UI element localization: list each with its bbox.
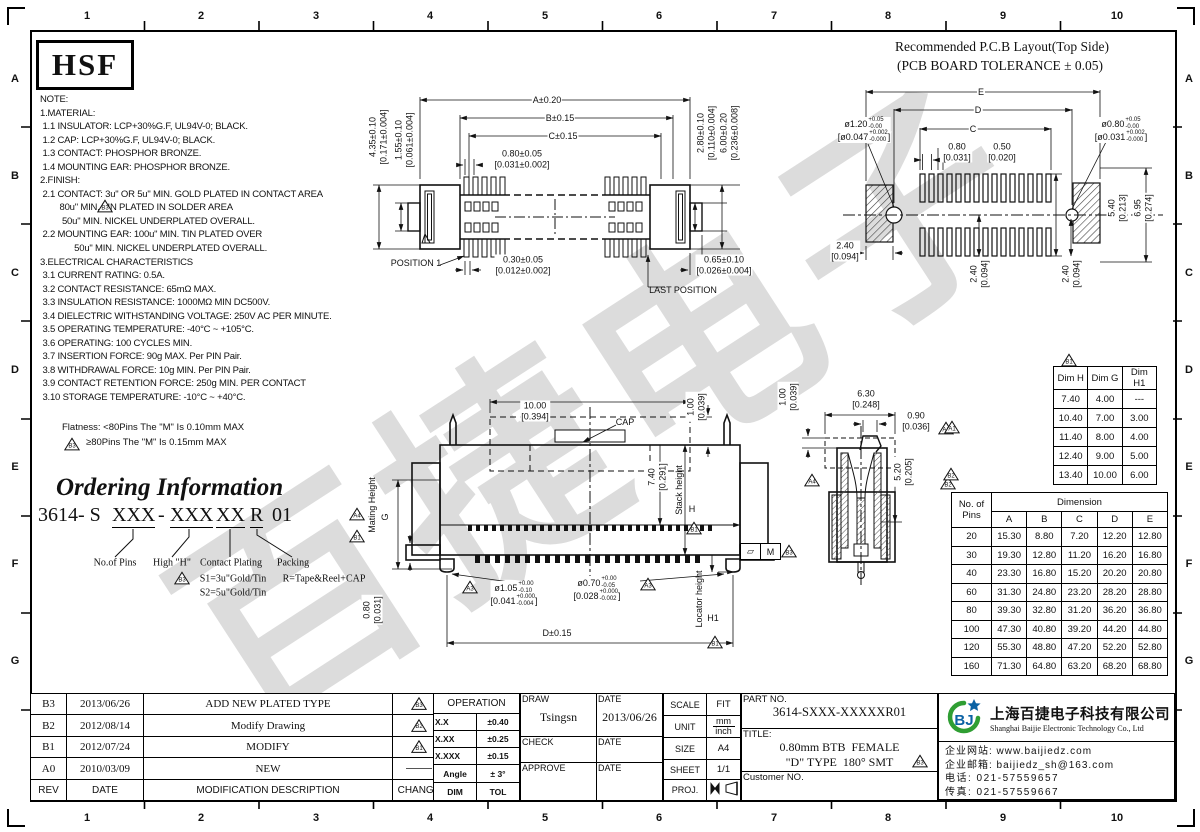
pcb-hole-right-callout: ø0.80+0.05-0.00 [ø0.031+0.002-0.000] [1095, 117, 1148, 143]
side-dim-100: 1.00 [0.039] [778, 382, 799, 412]
notes-block: NOTE: 1.MATERIAL: 1.1 INSULATOR: LCP+30%… [40, 93, 376, 405]
row-label: C [1185, 267, 1193, 279]
cell: 3.00 [1122, 409, 1156, 428]
cell: 4.00 [1122, 428, 1156, 447]
cell: 5.00 [1122, 447, 1156, 466]
cell: No. of Pins [952, 493, 992, 528]
dim-c: C±0.15 [548, 131, 579, 142]
rev-flag-a3: A3 [640, 578, 656, 591]
cell: ± 3° [477, 765, 520, 783]
stack-height-label: Stack height [674, 464, 685, 516]
cell: Dimension [992, 493, 1168, 512]
ordering-code-height: XXX [170, 504, 213, 528]
company-name-cn: 上海百捷电子科技有限公司 [990, 703, 1170, 724]
cell: 7.20 [1062, 528, 1097, 547]
row-label: A [1185, 73, 1193, 85]
row-label: F [12, 558, 19, 570]
rev-flag-a3: A3 [462, 581, 478, 594]
cell: E [1132, 512, 1167, 528]
locator-height-h1: H1 [706, 613, 720, 624]
company-header: BJ 上海百捷电子科技有限公司 Shanghai Baijie Electron… [939, 694, 1174, 742]
rev-flag-b2: B2 [943, 468, 959, 481]
cell: 11.20 [1062, 546, 1097, 565]
cell: 10.40 [1054, 409, 1088, 428]
part-no-label: PART NO. [743, 694, 936, 705]
pins-dimension-table: No. of Pins Dimension A B C D E 2015.308… [951, 492, 1168, 676]
tolerance-table: OPERATION X.X±0.40 X.XX±0.25 X.XXX±0.15 … [433, 693, 520, 801]
row-label: C [11, 267, 19, 279]
draw-date-cell: DATE 2013/06/26 [597, 694, 663, 737]
cell: 31.30 [992, 583, 1027, 602]
col-label: 2 [198, 812, 204, 824]
row-label: A [11, 73, 19, 85]
customer-no-cell: Customer NO. [742, 772, 938, 801]
pcb-dim-695: 6.95 [0.274] [1133, 193, 1154, 223]
mating-height-label: Mating Height [367, 476, 378, 534]
date-label: DATE [598, 763, 661, 773]
company-fax: 传真: 021-57559667 [945, 786, 1168, 800]
cell: 40 [952, 565, 992, 584]
baijie-logo-icon: BJ [943, 698, 987, 738]
tolerance-header: OPERATION [434, 694, 520, 714]
side-dim-090: 0.90 [0.036] [901, 411, 931, 432]
cell: DIM [434, 783, 477, 801]
unit-label: UNIT [664, 716, 707, 738]
cell: 24.80 [1027, 583, 1062, 602]
col-label: 10 [1111, 10, 1123, 22]
cell: 23.20 [1062, 583, 1097, 602]
cell: 20.20 [1097, 565, 1132, 584]
rev-flag-b3: B3 [64, 438, 80, 451]
cell: 15.20 [1062, 565, 1097, 584]
col-label: 3 [313, 10, 319, 22]
cell: 47.20 [1062, 639, 1097, 658]
col-label: 8 [885, 812, 891, 824]
cell: 28.20 [1097, 583, 1132, 602]
rev-flag-b1: B1 [1061, 354, 1077, 367]
cell: B [1027, 512, 1062, 528]
rev-date: 2013/06/26 [67, 694, 144, 715]
dim-a: A±0.20 [532, 95, 562, 106]
cell: Dim H1 [1122, 367, 1156, 390]
mating-height-g: G [380, 512, 391, 521]
col-label: 4 [427, 812, 433, 824]
flatness-note-1: Flatness: <80Pins The "M" Is 0.10mm MAX [62, 422, 244, 433]
unit-value: mm inch [707, 716, 741, 738]
row-label: F [1186, 558, 1193, 570]
parallelism-icon: ▱ [741, 544, 761, 559]
ordering-code-prefix: 3614- S [38, 504, 101, 527]
rev-header-desc: MODIFICATION DESCRIPTION [144, 780, 393, 801]
sheet-value: 1/1 [707, 760, 741, 780]
col-label: 2 [198, 10, 204, 22]
row-label: G [1185, 655, 1194, 667]
dim-cap-width: 10.00 [0.394] [520, 401, 550, 422]
cell: 47.30 [992, 620, 1027, 639]
cell: X.X [434, 714, 477, 731]
company-phone: 电话: 021-57559657 [945, 772, 1168, 786]
approval-block: DRAW Tsingsn DATE 2013/06/26 CHECK DATE … [520, 693, 663, 801]
cell: 44.80 [1132, 620, 1167, 639]
trim-mark [1177, 809, 1195, 827]
trim-mark [7, 809, 25, 827]
rev-flag-b1: B1 [349, 530, 365, 543]
col-label: 9 [1000, 10, 1006, 22]
cell: 13.40 [1054, 466, 1088, 485]
draw-date: 2013/06/26 [598, 710, 661, 725]
dim-155: 1.55±0.10 [0.061±0.004] [394, 112, 415, 169]
cap-label: CAP [615, 417, 636, 428]
revision-table: B3 2013/06/26 ADD NEW PLATED TYPE B3 B2 … [30, 693, 446, 801]
check-cell: CHECK [521, 737, 597, 763]
row-label: G [11, 655, 20, 667]
cell: 20 [952, 528, 992, 547]
pcb-dim-240-left: 2.40 [0.094] [830, 241, 860, 262]
rev-flag-b1: B1 [686, 522, 702, 535]
date-label: DATE [598, 737, 661, 747]
rev-desc: Modify Drawing [144, 715, 393, 737]
cell: 12.80 [1027, 546, 1062, 565]
ordering-code-pins: XXX [112, 504, 155, 528]
scale-label: SCALE [664, 694, 707, 716]
hsf-logo: HSF [36, 40, 134, 90]
cell: 39.30 [992, 602, 1027, 621]
ordering-packing-r: R=Tape&Reel+CAP [283, 574, 366, 585]
cell: TOL [477, 783, 520, 801]
svg-text:BJ: BJ [954, 712, 973, 729]
dim-cap-height: 1.00 [0.039] [686, 392, 707, 422]
col-label: 9 [1000, 812, 1006, 824]
pcb-dim-pitch: 0.80 [0.031] [942, 142, 972, 163]
cell: 60 [952, 583, 992, 602]
cell: 36.20 [1097, 602, 1132, 621]
sheet-label: SHEET [664, 760, 707, 780]
title-line-2: "D" TYPE 180° SMT [743, 755, 936, 770]
cell: 4.00 [1088, 390, 1122, 409]
row-label: E [1185, 461, 1192, 473]
cell: 16.20 [1097, 546, 1132, 565]
col-label: 7 [771, 812, 777, 824]
cell: 31.20 [1062, 602, 1097, 621]
col-label: 8 [885, 10, 891, 22]
part-block: PART NO. 3614-SXXX-XXXXXR01 TITLE: 0.80m… [741, 693, 938, 801]
col-label: 7 [771, 10, 777, 22]
cell: 120 [952, 639, 992, 658]
ordering-code-dash: - [158, 504, 165, 527]
rev-flag-a4: A4 [349, 508, 365, 521]
row-label: D [11, 364, 19, 376]
last-position-label: LAST POSITION [648, 285, 718, 296]
cell: 68.80 [1132, 657, 1167, 676]
pcb-dim-240-mid: 2.40 [0.094] [969, 259, 990, 289]
cell: 52.80 [1132, 639, 1167, 658]
col-label: 5 [542, 812, 548, 824]
rev-date: 2012/08/14 [67, 715, 144, 737]
dim-080: 0.80 [0.031] [362, 595, 383, 625]
cell: Dim H [1054, 367, 1088, 390]
rev-flag-b3: B3 [97, 200, 113, 213]
dim-d: D±0.15 [542, 628, 573, 639]
cell: --- [1122, 390, 1156, 409]
dim-065: 0.65±0.10 [0.026±0.004] [696, 255, 753, 276]
cell: 7.40 [1054, 390, 1088, 409]
drawing-sheet: 百捷电子 1 2 3 4 5 6 7 8 9 10 1 2 3 4 5 6 7 … [0, 0, 1200, 832]
rev-id: B1 [31, 737, 67, 758]
side-dim-520: 5.20 [0.205] [893, 457, 914, 487]
cell: 7.00 [1088, 409, 1122, 428]
cell: ±0.15 [477, 748, 520, 765]
cell: 48.80 [1027, 639, 1062, 658]
col-label: 3 [313, 812, 319, 824]
ordering-label-packing: Packing [277, 558, 309, 569]
rev-header-date: DATE [67, 780, 144, 801]
title-label: TITLE: [743, 729, 936, 740]
pcb-layout-title: Recommended P.C.B Layout(Top Side) [895, 39, 1109, 55]
rev-flag-b3: B3 [912, 755, 928, 768]
ordering-code-packing: R [250, 504, 263, 528]
trim-mark [7, 7, 25, 25]
cell: 16.80 [1132, 546, 1167, 565]
rev-flag-b1: B1 [707, 636, 723, 649]
rev-flag-b2: B2 [411, 719, 427, 732]
cell: 30 [952, 546, 992, 565]
cell: 55.30 [992, 639, 1027, 658]
col-label: 6 [656, 10, 662, 22]
size-value: A4 [707, 738, 741, 760]
company-contacts: 企业网站: www.baijiedz.com 企业邮箱: baijiedz_sh… [939, 742, 1174, 802]
cell: Dim G [1088, 367, 1122, 390]
dim-hole-070: ø0.70+0.00-0.05 [0.028+0.000-0.002] [573, 576, 620, 602]
unit-inch: inch [708, 727, 739, 737]
cell: 160 [952, 657, 992, 676]
cell: 68.20 [1097, 657, 1132, 676]
ordering-plating-s1: S1=3u"Gold/Tin [200, 574, 267, 585]
fcf-m: M [761, 544, 780, 559]
company-names: 上海百捷电子科技有限公司 Shanghai Baijie Electronic … [990, 703, 1170, 733]
cell: 10.00 [1088, 466, 1122, 485]
company-name-en: Shanghai Baijie Electronic Technology Co… [990, 724, 1170, 733]
rev-flag-a1: A1 [944, 421, 960, 434]
ordering-plating-s2: S2=5u"Gold/Tin [200, 588, 267, 599]
title-line-1: 0.80mm BTB FEMALE [743, 740, 936, 755]
cell: 71.30 [992, 657, 1027, 676]
dim-hole-105: ø1.05+0.00-0.10 [0.041+0.000-0.004] [490, 581, 537, 607]
title-cell: TITLE: 0.80mm BTB FEMALE "D" TYPE 180° S… [742, 729, 938, 772]
scale-value: FIT [707, 694, 741, 716]
pcb-dim-c: C [969, 124, 978, 135]
rev-flag-b1: B1 [411, 740, 427, 753]
cell: C [1062, 512, 1097, 528]
col-label: 6 [656, 812, 662, 824]
stack-height-h: H [688, 504, 697, 515]
cell: 39.20 [1062, 620, 1097, 639]
row-label: B [1185, 170, 1193, 182]
pcb-dim-padwidth: 0.50 [0.020] [987, 142, 1017, 163]
draw-label: DRAW [522, 694, 595, 704]
cell: 23.30 [992, 565, 1027, 584]
cell: 8.80 [1027, 528, 1062, 547]
customer-no-label: Customer NO. [743, 772, 936, 783]
rev-desc: ADD NEW PLATED TYPE [144, 694, 393, 715]
cell: X.XX [434, 731, 477, 748]
check-label: CHECK [522, 737, 595, 747]
rev-date: 2010/03/09 [67, 758, 144, 780]
rev-desc: MODIFY [144, 737, 393, 758]
flatness-note-2: ≥80Pins The "M" Is 0.15mm MAX [86, 437, 227, 448]
info-block: SCALE FIT UNIT mm inch SIZE A4 SHEET 1/1… [663, 693, 741, 801]
cell: 9.00 [1088, 447, 1122, 466]
cell: 16.80 [1027, 565, 1062, 584]
locator-height-label: Locator height [694, 569, 705, 628]
cell: Angle [434, 765, 477, 783]
cell: 15.30 [992, 528, 1027, 547]
cell: 19.30 [992, 546, 1027, 565]
ordering-label-pins: No.of Pins [94, 558, 137, 569]
cell: 40.80 [1027, 620, 1062, 639]
pcb-dim-e: E [977, 87, 985, 98]
ordering-code-plating: XX [216, 504, 245, 528]
ordering-label-height: High "H" [153, 558, 191, 569]
rev-flag-b3: B3 [411, 697, 427, 710]
rev-id: B3 [31, 694, 67, 715]
cell: 8.00 [1088, 428, 1122, 447]
cell: 28.80 [1132, 583, 1167, 602]
rev-flag-b3: B3 [781, 545, 797, 558]
cell: 20.80 [1132, 565, 1167, 584]
rev-flag-b3: B3 [174, 572, 190, 585]
size-label: SIZE [664, 738, 707, 760]
col-label: 1 [84, 812, 90, 824]
position1-label: POSITION 1 [390, 258, 443, 269]
cell: ±0.40 [477, 714, 520, 731]
draw-name: Tsingsn [522, 710, 595, 725]
approve-date-cell: DATE [597, 763, 663, 801]
company-website: 企业网站: www.baijiedz.com [945, 745, 1168, 759]
rev-id: A0 [31, 758, 67, 780]
side-dim-630: 6.30 [0.248] [851, 389, 881, 410]
col-label: 10 [1111, 812, 1123, 824]
cell: 32.80 [1027, 602, 1062, 621]
cell: 52.20 [1097, 639, 1132, 658]
dim-435: 4.35±0.10 [0.171±0.004] [368, 109, 389, 166]
approve-cell: APPROVE [521, 763, 597, 801]
cell: 80 [952, 602, 992, 621]
dim-b: B±0.15 [545, 113, 575, 124]
trim-mark [1177, 7, 1195, 25]
dim-280: 2.80±0.10 [0.110±0.004] [696, 105, 717, 161]
cell: A [992, 512, 1027, 528]
dim-740: 7.40 [0.291] [647, 462, 668, 492]
cell: 12.80 [1132, 528, 1167, 547]
cell: ±0.25 [477, 731, 520, 748]
ordering-label-plating: Contact Plating [200, 558, 262, 569]
date-label: DATE [598, 694, 661, 704]
cell: D [1097, 512, 1132, 528]
rev-date: 2012/07/24 [67, 737, 144, 758]
cell: 6.00 [1122, 466, 1156, 485]
pcb-dim-d: D [974, 105, 983, 116]
draw-cell: DRAW Tsingsn [521, 694, 597, 737]
cell: 64.80 [1027, 657, 1062, 676]
cell: 12.40 [1054, 447, 1088, 466]
rev-id: B2 [31, 715, 67, 737]
company-email: 企业邮箱: baijiedz_sh@163.com [945, 759, 1168, 773]
company-block: BJ 上海百捷电子科技有限公司 Shanghai Baijie Electron… [938, 693, 1175, 800]
dim-pin-width: 0.30±0.05 [0.012±0.002] [495, 255, 552, 276]
row-label: D [1185, 364, 1193, 376]
projection-symbol-icon [707, 780, 741, 801]
dim-pitch: 0.80±0.05 [0.031±0.002] [494, 149, 551, 170]
cell: 11.40 [1054, 428, 1088, 447]
row-label: B [11, 170, 19, 182]
flatness-feature-frame: ▱ M [740, 543, 781, 560]
pcb-layout-subtitle: (PCB BOARD TOLERANCE ± 0.05) [897, 58, 1103, 74]
cell: 12.20 [1097, 528, 1132, 547]
rev-header-rev: REV [31, 780, 67, 801]
pcb-hole-left-callout: ø1.20+0.05-0.00 [ø0.047+0.002-0.000] [838, 117, 891, 143]
dash-icon [406, 768, 432, 769]
rev-desc: NEW [144, 758, 393, 780]
check-date-cell: DATE [597, 737, 663, 763]
cell: 100 [952, 620, 992, 639]
col-label: 4 [427, 10, 433, 22]
pcb-dim-540: 5.40 [0.213] [1107, 193, 1128, 223]
ordering-heading: Ordering Information [56, 474, 283, 502]
cell: 63.20 [1062, 657, 1097, 676]
cell: 36.80 [1132, 602, 1167, 621]
part-no-value: 3614-SXXX-XXXXXR01 [743, 705, 936, 720]
cell: X.XXX [434, 748, 477, 765]
rev-flag-a4: A4 [804, 474, 820, 487]
pcb-dim-240-right: 2.40 [0.094] [1061, 259, 1082, 289]
dim-hgh1-table: Dim H Dim G Dim H1 7.404.00--- 10.407.00… [1053, 366, 1157, 485]
hsf-logo-text: HSF [52, 47, 118, 83]
col-label: 5 [542, 10, 548, 22]
col-label: 1 [84, 10, 90, 22]
front-view-drawing [340, 385, 805, 675]
proj-label: PROJ. [664, 780, 707, 801]
cell: 44.20 [1097, 620, 1132, 639]
row-label: E [11, 461, 18, 473]
dim-600: 6.00±0.20 [0.236±0.008] [719, 105, 740, 162]
part-no-cell: PART NO. 3614-SXXX-XXXXXR01 [742, 694, 938, 729]
approve-label: APPROVE [522, 763, 595, 773]
ordering-code-suffix: 01 [272, 504, 292, 527]
